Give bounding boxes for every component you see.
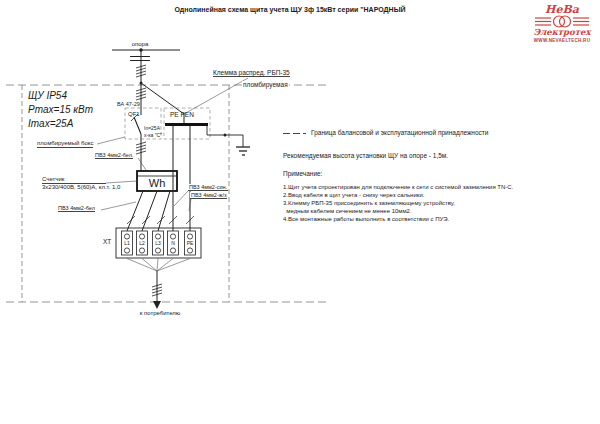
consumer-line: [153, 271, 161, 309]
mount-height-note: Рекомендуемая высота установки ЩУ на опо…: [283, 152, 448, 159]
logo-url: WWW.NEVAELTECH.RU: [529, 38, 595, 43]
breaker-current-label: In=25A: [144, 126, 160, 132]
enclosure-rating-imax: Imax=25A: [28, 118, 73, 129]
clamp-label-line2: пломбируемая: [242, 81, 289, 88]
wire-label-white-bottom: ПВ3 4мм2-бел: [58, 205, 95, 212]
ground-symbol: [236, 147, 250, 155]
pen-bus-label: PE PEN: [170, 111, 194, 118]
wire-label-white-top: ПВ3 4мм2-бел.: [95, 152, 133, 159]
note-line-3: 3.Клемму РБП-35 присоединить к заземляющ…: [283, 200, 455, 207]
consumer-fan: [127, 259, 190, 272]
terminal-label-l2: L2: [135, 241, 149, 247]
note-line-4: медным кабелем сечением не менее 10мм2.: [283, 208, 412, 215]
meter-symbol-label: Wh: [137, 177, 177, 189]
enclosure-rating-title: ЩУ IP54: [28, 90, 67, 101]
page-title: Однолинейная схема щита учета ЩУ 3ф 15кВ…: [105, 6, 475, 14]
clamp-label-line1: Клемма распред. РБП-35: [213, 69, 290, 77]
terminal-label-pe: PE: [183, 241, 197, 247]
note-line-1: 1.Щит учета спроектирован для подключени…: [283, 184, 513, 191]
terminal-label-n: N: [166, 241, 180, 247]
meter-specs: 3х230/400В, 5(60)А, кл.т. 1,0: [42, 184, 120, 191]
ground-branch: [207, 126, 243, 147]
enclosure-rating-pmax: Pmax=15 кВт: [28, 104, 93, 115]
terminal-block-ref: XT: [103, 238, 111, 245]
note-line-5: 4.Все монтажные работы выполнить в соотв…: [283, 216, 449, 223]
consumer-arrow: [153, 301, 161, 309]
breaker-model-label: ВА 47-29: [117, 101, 140, 107]
logo: НеВа Электротех WWW.NEVAELTECH.RU: [529, 4, 595, 43]
pole-symbol: [112, 48, 180, 60]
logo-brand-bottom: Электротех: [529, 28, 595, 37]
terminal-label-l3: L3: [151, 241, 165, 247]
terminal-label-l1: L1: [120, 241, 134, 247]
legend-boundary-label: Граница балансовой и эксплуатационной пр…: [311, 129, 488, 136]
wire-label-yellow-green: ПВ3 4мм2-ж/з: [190, 192, 227, 199]
phase-wires: [127, 191, 170, 231]
schematic-page: Однолинейная схема щита учета ЩУ 3ф 15кВ…: [0, 0, 600, 424]
notes-heading: Примечание:: [283, 170, 322, 177]
meter-caption: Счетчик: [42, 176, 106, 184]
note-line-2: 2.Ввод кабеля в щит учета - снизу через …: [283, 192, 424, 199]
breaker-curve-label: х-ка "С": [144, 133, 162, 139]
pole-label: опора: [121, 41, 159, 48]
wire-label-blue: ПВ3 4мм2-син.: [188, 184, 228, 191]
breaker-ref-label: QF1: [128, 111, 140, 118]
sealed-box-label: пломбируемый бокс: [37, 140, 93, 148]
consumer-label: к потребителю: [125, 310, 195, 317]
